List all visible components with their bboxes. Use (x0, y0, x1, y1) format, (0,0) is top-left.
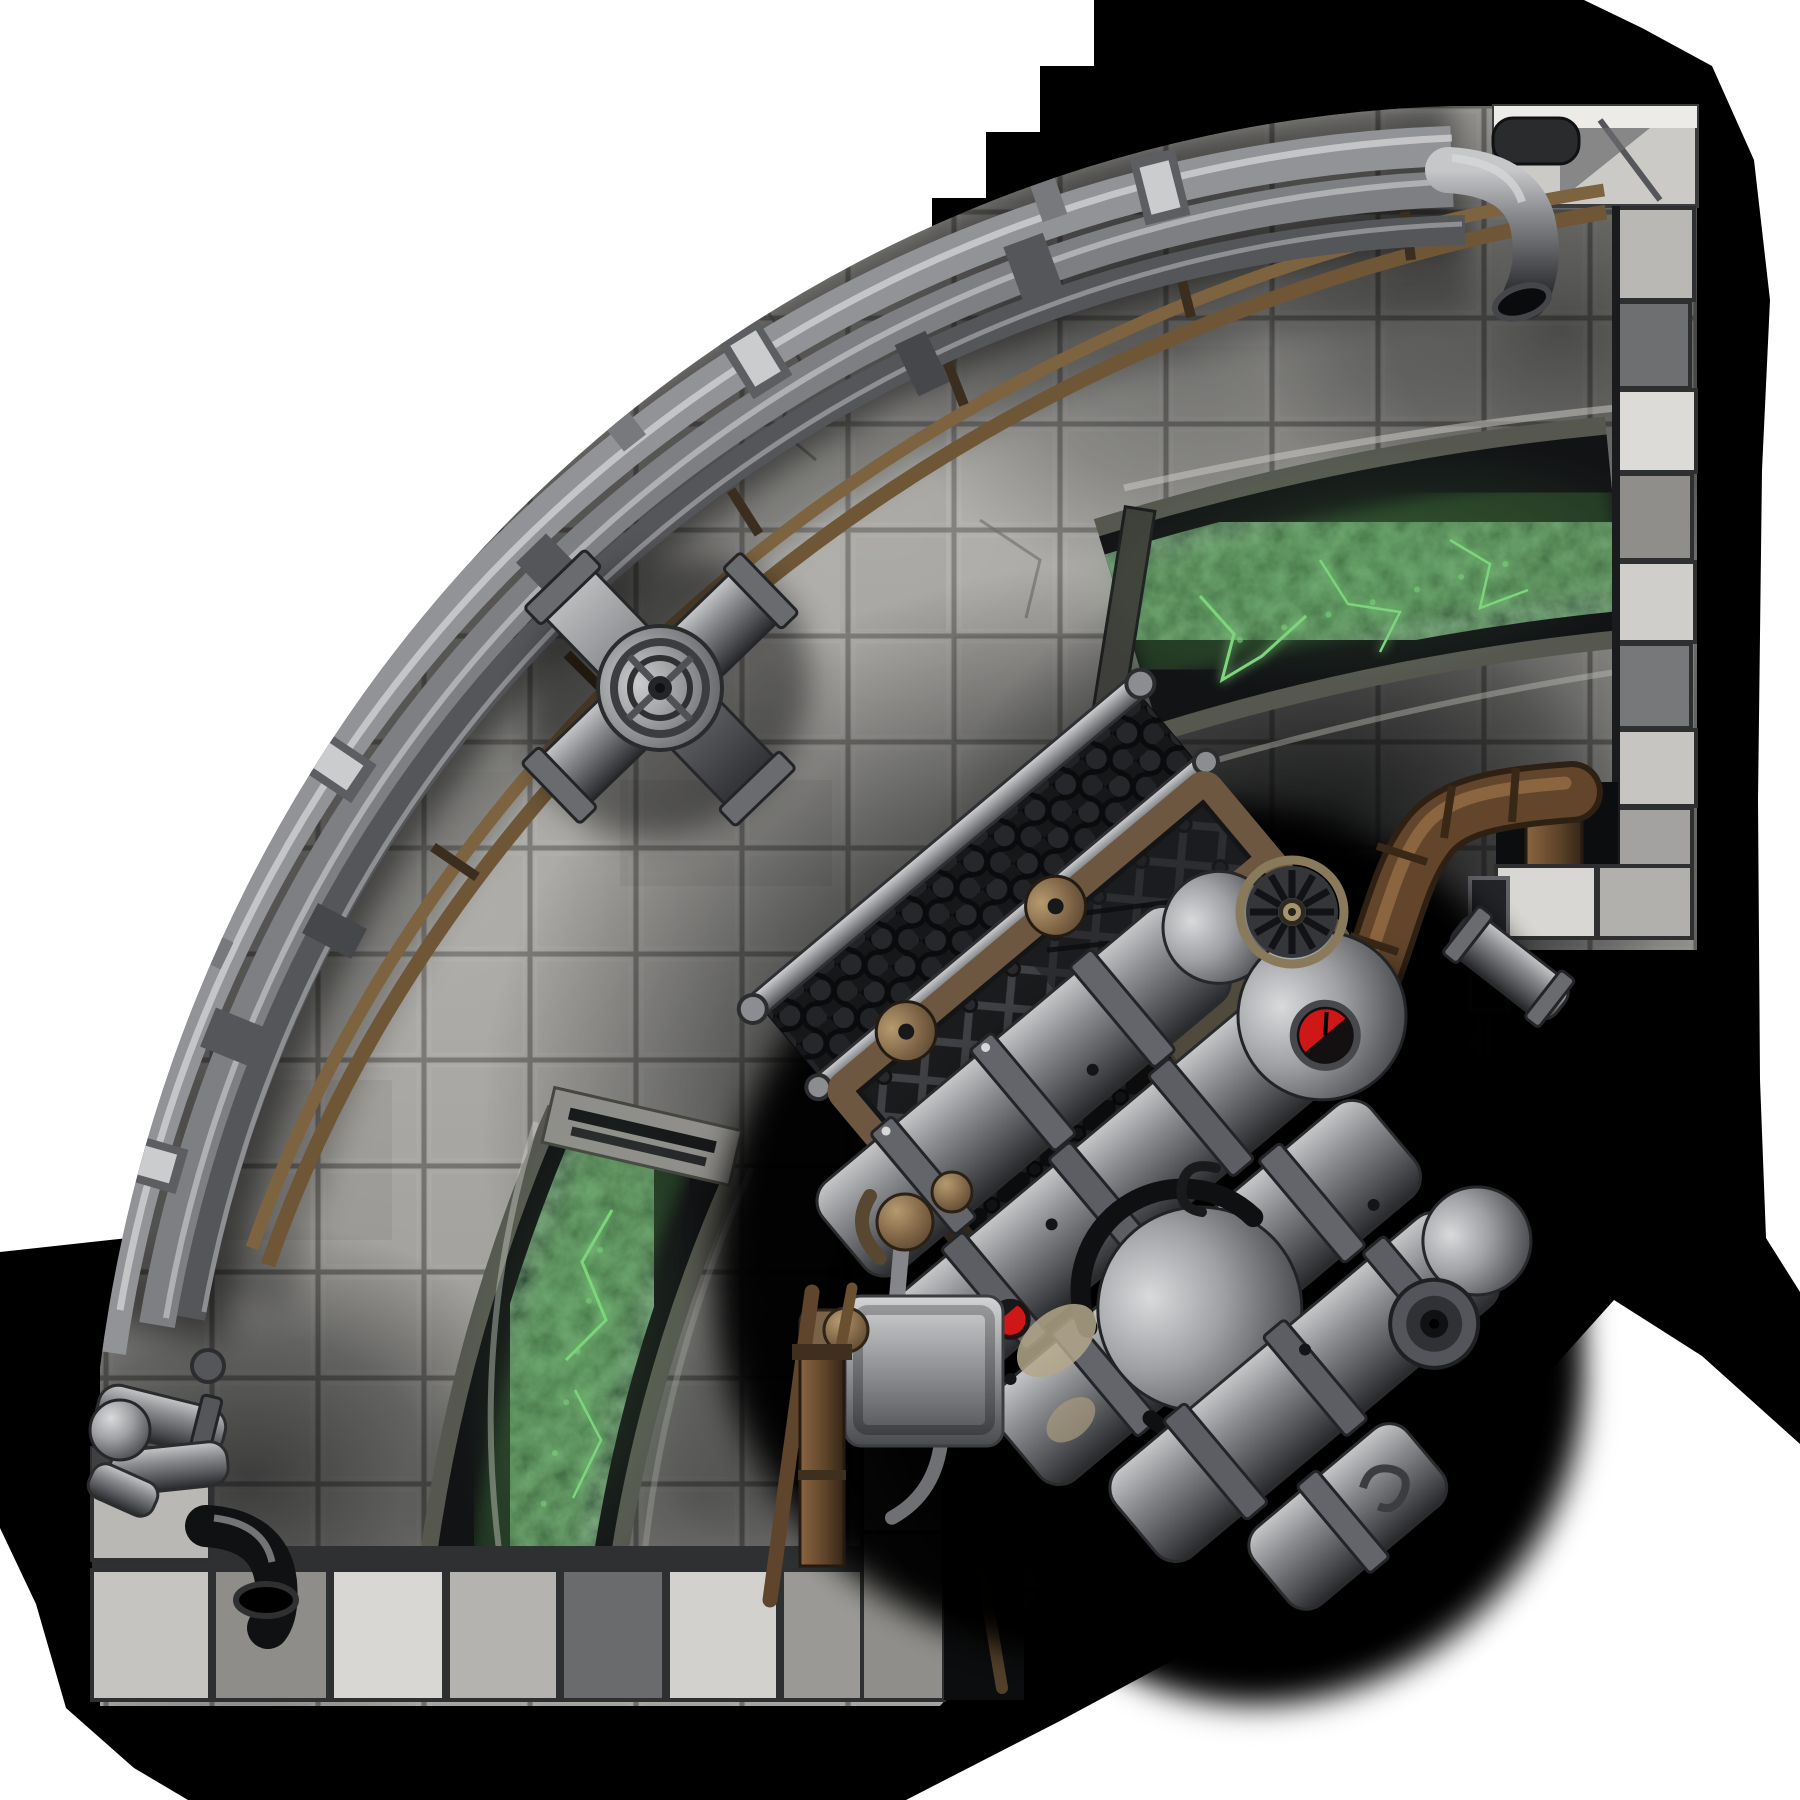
fan-axle (1288, 908, 1296, 916)
wall-stone (1618, 390, 1696, 472)
pipe-ring (1512, 768, 1516, 822)
wall-stone (332, 1570, 444, 1700)
wall-stones-east-bottom (1496, 866, 1692, 938)
stand-pipe-flange (792, 1344, 852, 1360)
wall-stone (1618, 474, 1692, 560)
wall-stone (668, 1570, 778, 1700)
wall-stone (1618, 562, 1695, 642)
coupling-ring (743, 338, 768, 379)
wall-stone (1618, 808, 1692, 868)
coupling (910, 338, 934, 389)
wall-stone (92, 1570, 210, 1700)
wall-ledge (92, 1546, 907, 1570)
stand-pipe (800, 1352, 844, 1566)
duct-box (845, 1296, 1003, 1446)
wall-stone (1618, 730, 1696, 806)
bronze-tank (877, 1194, 933, 1250)
bronze-tank (932, 1172, 972, 1212)
coupling-ring (1154, 164, 1166, 211)
coupling (208, 1027, 267, 1051)
wall-stone (1618, 644, 1691, 728)
iron-pipe-over-wall (1493, 118, 1579, 164)
wall-stone (1598, 866, 1692, 938)
coupling (310, 918, 359, 944)
elbow-mouth (236, 1584, 296, 1616)
wall-stone (1496, 866, 1596, 938)
stand-pipe-ring (798, 1470, 846, 1480)
tee-cap (192, 1350, 224, 1382)
coupling (1023, 240, 1045, 300)
wall-stones-east (1618, 208, 1696, 868)
wall-stone (448, 1570, 558, 1700)
wall-stone (1618, 208, 1694, 300)
ball-joint (90, 1400, 150, 1460)
wall-stones-south (92, 1570, 905, 1700)
wall-stone (1618, 302, 1690, 388)
wall-inner-seam (1612, 206, 1620, 868)
battlemap-canvas (0, 0, 1800, 1800)
turbine-fan (1240, 860, 1344, 964)
wall-stone (562, 1570, 664, 1700)
